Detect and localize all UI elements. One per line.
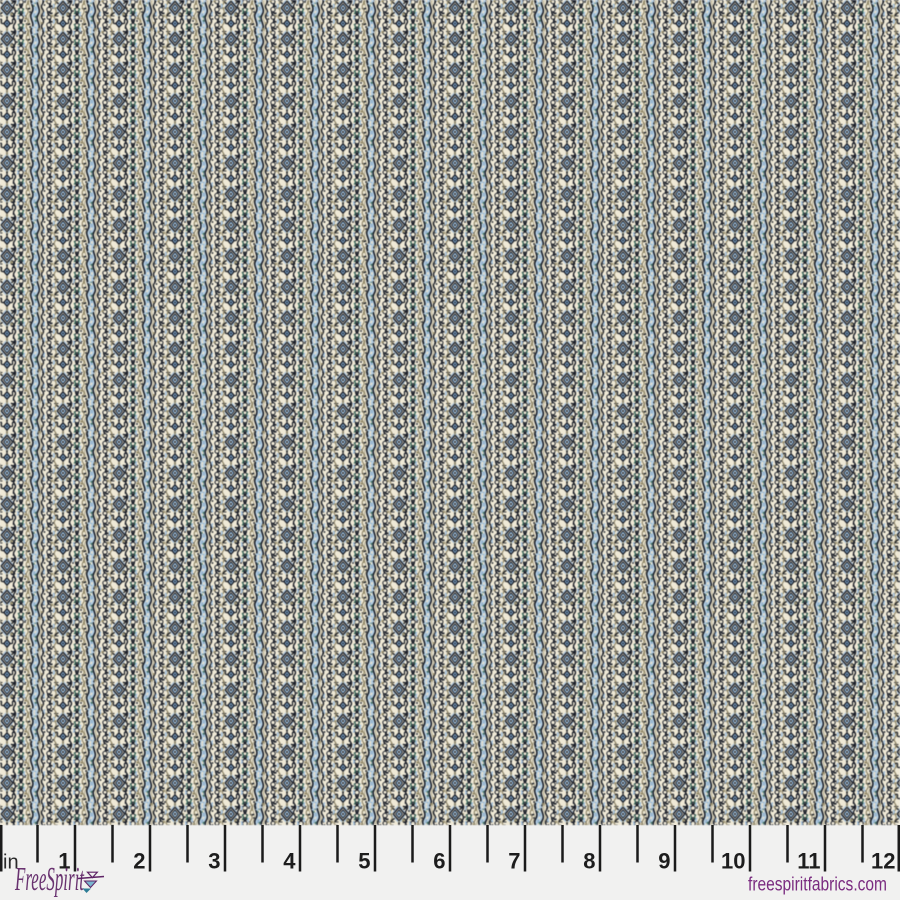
svg-text:freespiritfabrics.com: freespiritfabrics.com xyxy=(748,875,887,896)
svg-text:9: 9 xyxy=(658,849,670,874)
svg-text:5: 5 xyxy=(358,849,370,874)
svg-text:FreeSpirit: FreeSpirit xyxy=(15,861,85,898)
svg-text:7: 7 xyxy=(508,849,520,874)
svg-text:8: 8 xyxy=(583,849,595,874)
svg-text:6: 6 xyxy=(433,849,445,874)
